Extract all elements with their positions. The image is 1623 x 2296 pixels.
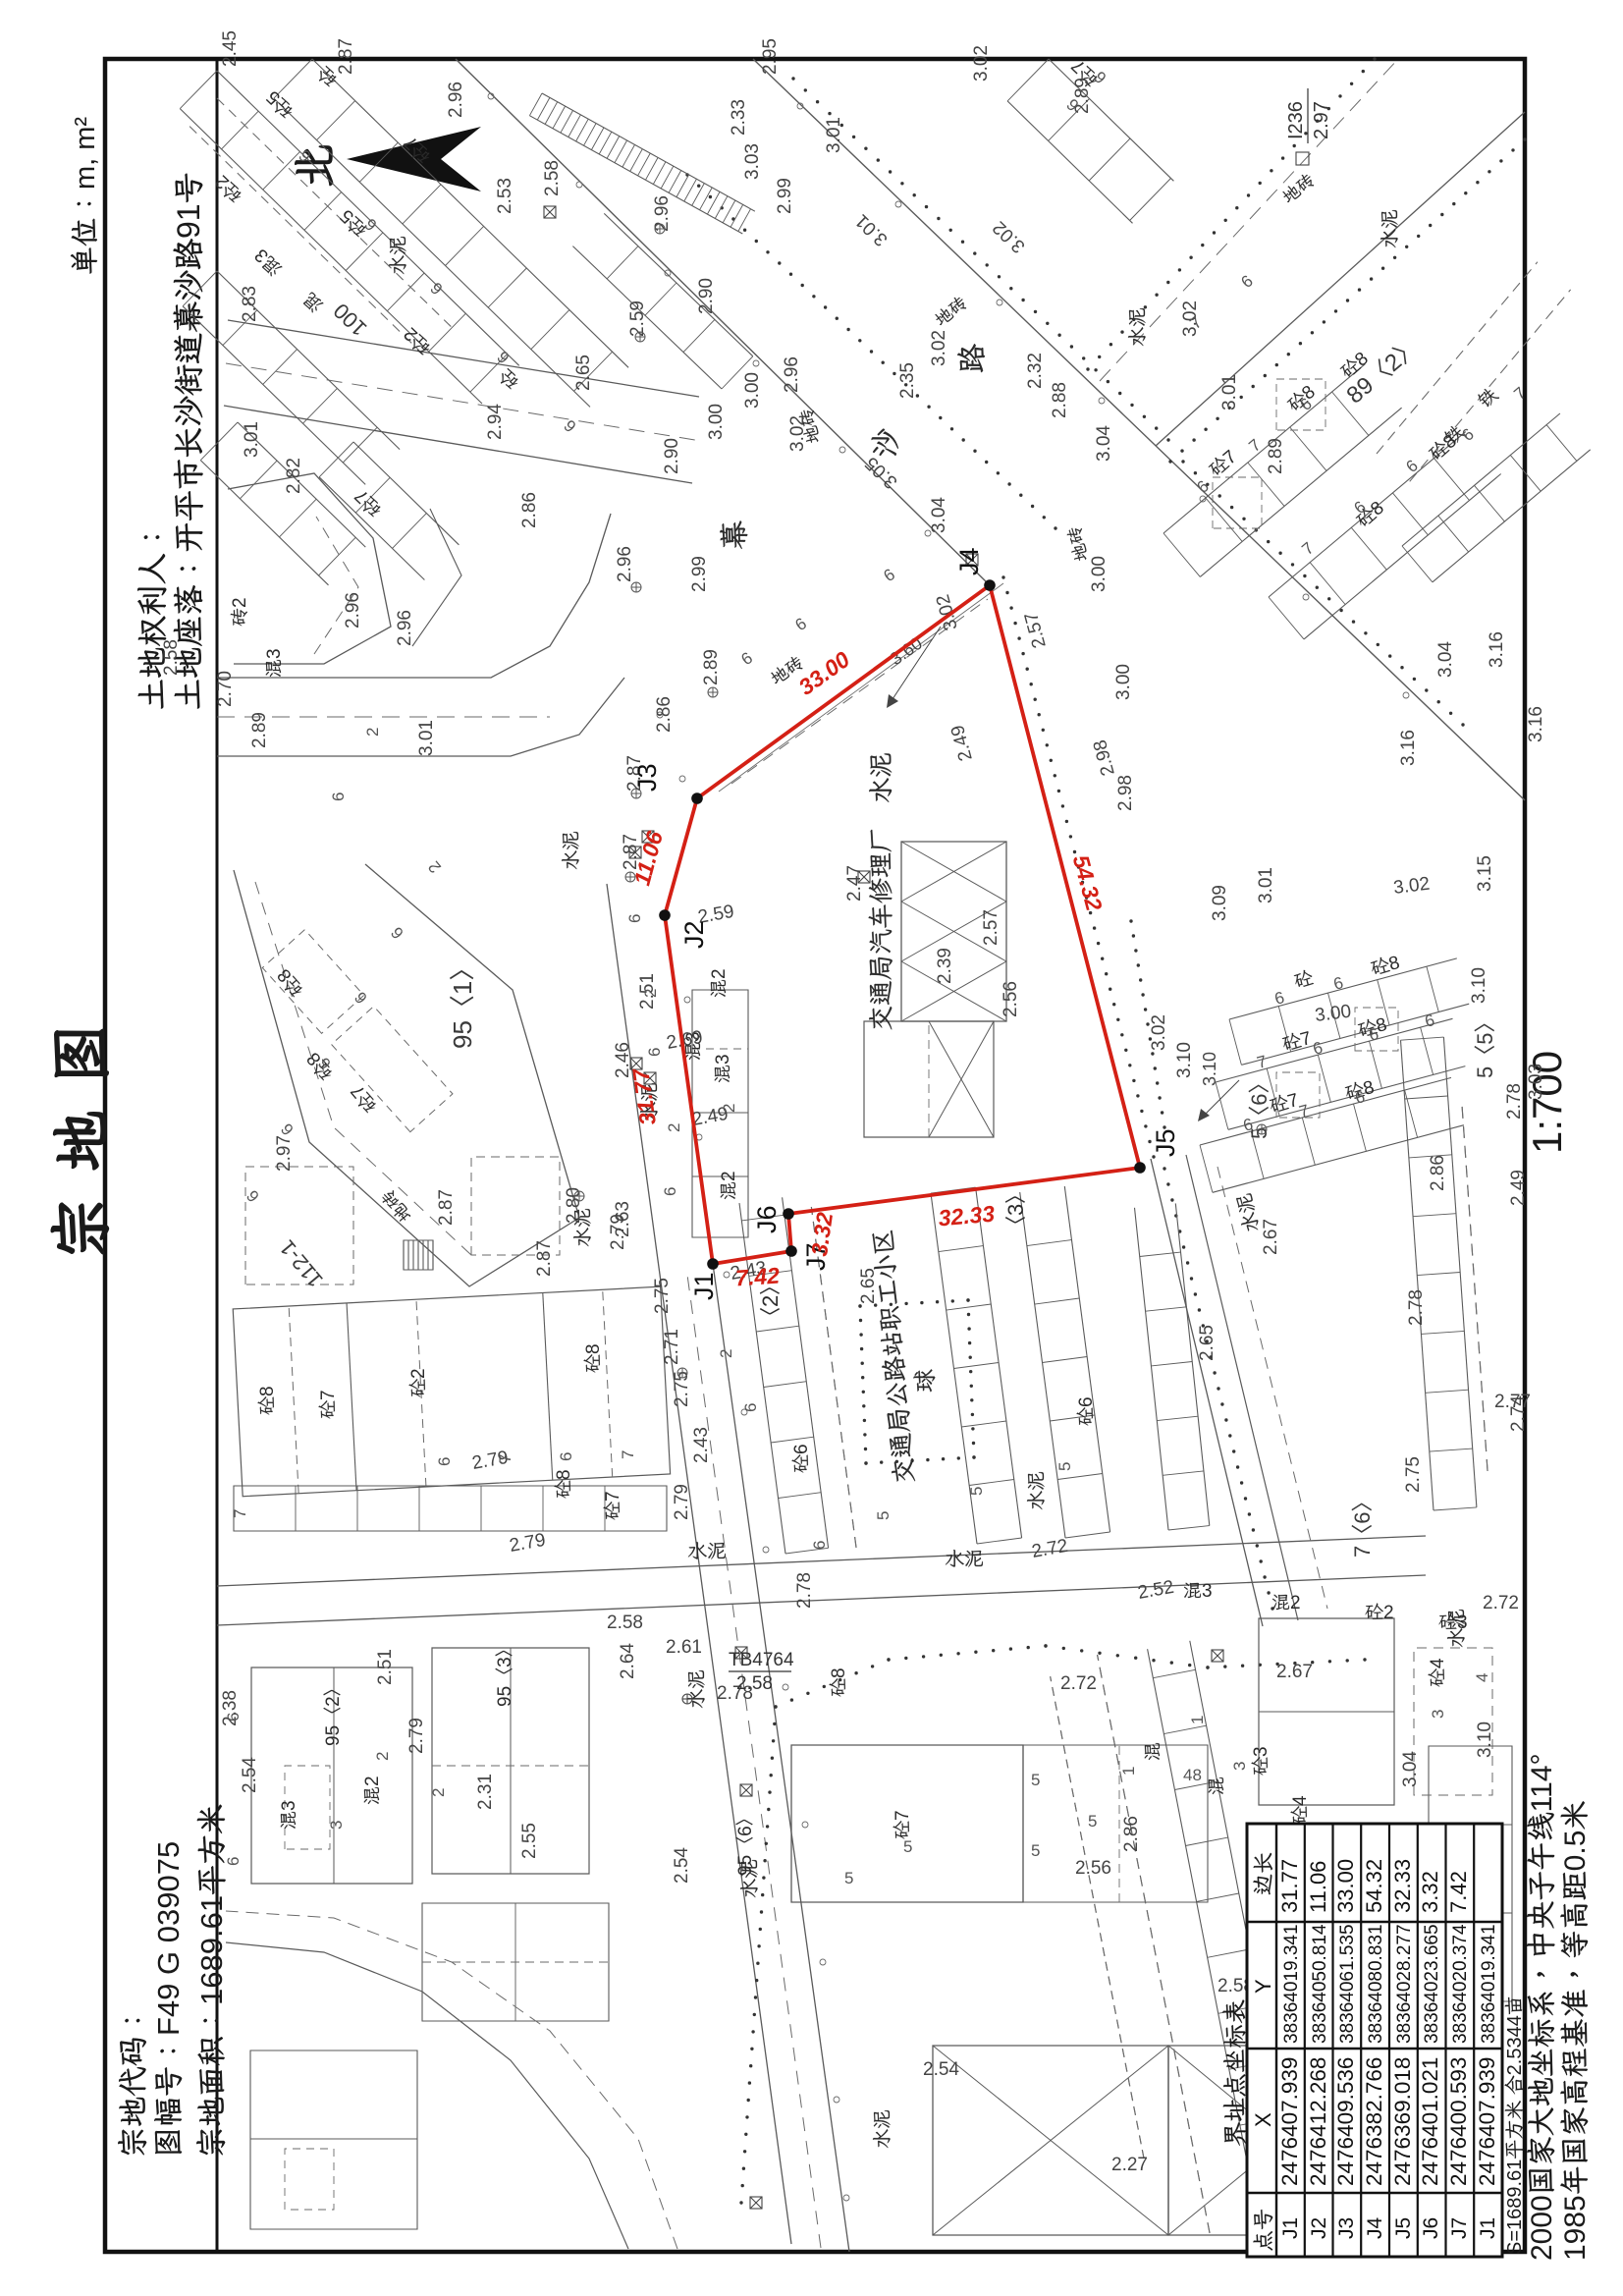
svg-text:2: 2: [641, 989, 660, 998]
svg-text:54.32: 54.32: [1362, 1859, 1386, 1913]
svg-text:38364019.341: 38364019.341: [1479, 1924, 1499, 2044]
svg-text:5: 5: [874, 1511, 893, 1520]
svg-text:J4: J4: [1364, 2217, 1386, 2240]
svg-text:3.01: 3.01: [416, 720, 437, 756]
svg-text:11.06: 11.06: [1306, 1861, 1330, 1913]
svg-text:6: 6: [791, 1444, 812, 1454]
svg-text:32.33: 32.33: [1390, 1859, 1415, 1913]
svg-text:3: 3: [495, 1657, 515, 1667]
svg-text:2.89: 2.89: [1266, 438, 1286, 474]
svg-text:5: 5: [903, 1837, 912, 1856]
svg-text:4: 4: [1473, 1673, 1491, 1682]
svg-text:2.86: 2.86: [1428, 1155, 1448, 1191]
svg-text:2476407.939: 2476407.939: [1475, 2057, 1499, 2186]
svg-text:m, m²: m, m²: [70, 117, 101, 190]
svg-text:91: 91: [171, 203, 206, 239]
svg-text:J2: J2: [679, 920, 709, 949]
svg-text:2.99: 2.99: [775, 178, 795, 214]
svg-text:2.98: 2.98: [1115, 775, 1136, 811]
svg-text:2.95: 2.95: [760, 38, 781, 75]
svg-text:2.49: 2.49: [1508, 1170, 1529, 1206]
svg-text:2476400.593: 2476400.593: [1446, 2057, 1471, 2186]
svg-text:8: 8: [829, 1667, 849, 1678]
svg-text:2.82: 2.82: [284, 458, 304, 494]
svg-text:2: 2: [362, 1776, 383, 1786]
svg-text:2.71: 2.71: [662, 1329, 682, 1365]
svg-text:33.00: 33.00: [1333, 1859, 1358, 1913]
svg-text:1: 1: [1188, 1716, 1207, 1724]
svg-text:38364080.831: 38364080.831: [1366, 1924, 1386, 2044]
svg-text:2.64: 2.64: [618, 1643, 638, 1679]
svg-text:5: 5: [1088, 1812, 1097, 1831]
svg-text:TB4764: TB4764: [729, 1650, 794, 1670]
svg-text:3.01: 3.01: [242, 421, 262, 458]
svg-text:5: 5: [1031, 1841, 1040, 1860]
svg-text:5: 5: [1031, 1771, 1040, 1789]
svg-text:3.01: 3.01: [824, 117, 844, 153]
svg-text:J1: J1: [1477, 2217, 1499, 2239]
svg-text:5: 5: [1055, 1462, 1074, 1471]
svg-text:5: 5: [967, 1487, 986, 1496]
svg-text:114°: 114°: [1526, 1753, 1558, 1812]
svg-text:7: 7: [603, 1491, 623, 1502]
svg-text:2.61: 2.61: [666, 1637, 702, 1658]
svg-text:3.03: 3.03: [1526, 1064, 1546, 1100]
svg-text:1985: 1985: [1559, 2195, 1592, 2261]
svg-text:2.97: 2.97: [274, 1135, 295, 1172]
svg-text:3: 3: [713, 1054, 733, 1065]
svg-text:2.72: 2.72: [1483, 1593, 1519, 1613]
svg-text:1: 1: [1119, 1767, 1138, 1776]
svg-text:Y: Y: [1251, 1979, 1275, 1994]
svg-text:38364050.814: 38364050.814: [1310, 1924, 1330, 2044]
svg-text:2.89: 2.89: [249, 712, 270, 748]
svg-text:32.33: 32.33: [937, 1201, 996, 1231]
svg-text:3.02: 3.02: [1392, 874, 1431, 899]
svg-text:2.86: 2.86: [519, 492, 540, 528]
svg-text:3.01: 3.01: [1256, 867, 1276, 903]
svg-text:3: 3: [1457, 1613, 1468, 1633]
svg-text:2.99: 2.99: [689, 556, 710, 592]
svg-text:3.10: 3.10: [1200, 1052, 1219, 1086]
svg-text:2.65: 2.65: [573, 355, 594, 391]
svg-text:95: 95: [495, 1686, 515, 1707]
svg-text:7: 7: [231, 1509, 249, 1518]
svg-text:2.87: 2.87: [534, 1240, 555, 1277]
svg-text:3.16: 3.16: [1398, 730, 1419, 766]
svg-text:3: 3: [1230, 1762, 1249, 1771]
svg-text:J2: J2: [1308, 2217, 1330, 2239]
svg-text:2.65: 2.65: [858, 1268, 879, 1304]
svg-text:J1: J1: [1279, 2217, 1302, 2239]
svg-text:2.87: 2.87: [436, 1189, 457, 1226]
svg-text:2: 2: [429, 1788, 448, 1797]
svg-text:6: 6: [224, 1857, 243, 1866]
svg-text:6: 6: [645, 1048, 664, 1057]
svg-text:3.02: 3.02: [787, 415, 808, 452]
svg-text:2.58: 2.58: [542, 160, 563, 196]
svg-text:2476401.021: 2476401.021: [1418, 2057, 1442, 2186]
svg-text:2.75: 2.75: [1403, 1456, 1424, 1493]
svg-text:6: 6: [224, 1713, 243, 1722]
svg-text:2.55: 2.55: [519, 1823, 540, 1859]
svg-text:J4: J4: [954, 547, 984, 575]
svg-text:2: 2: [363, 728, 382, 737]
svg-text:2.78: 2.78: [794, 1572, 815, 1609]
svg-text:2.45: 2.45: [220, 30, 241, 67]
svg-text:3: 3: [1251, 1746, 1271, 1757]
svg-text:3.04: 3.04: [1094, 425, 1114, 462]
svg-text:95: 95: [735, 1855, 756, 1876]
svg-text:2.80: 2.80: [564, 1187, 584, 1224]
svg-text:J5: J5: [1151, 1128, 1180, 1157]
svg-text:2.94: 2.94: [485, 404, 506, 440]
svg-text:3.04: 3.04: [929, 497, 949, 533]
svg-text:2.74: 2.74: [1508, 1395, 1529, 1432]
svg-text:3: 3: [1003, 1204, 1028, 1216]
svg-text:2.70: 2.70: [215, 671, 236, 707]
svg-text:2.88: 2.88: [1050, 382, 1070, 418]
svg-text:2.5344: 2.5344: [1504, 2015, 1526, 2075]
svg-text:2.89: 2.89: [701, 649, 722, 685]
svg-text:2: 2: [720, 1104, 738, 1113]
svg-text:2: 2: [230, 597, 250, 608]
svg-text:2.58: 2.58: [607, 1613, 643, 1633]
svg-text:3.04: 3.04: [1435, 641, 1456, 678]
svg-text:3: 3: [1202, 1581, 1213, 1602]
svg-text:3.01: 3.01: [1219, 374, 1240, 410]
svg-text:6: 6: [557, 1452, 575, 1461]
svg-text:2476409.536: 2476409.536: [1333, 2057, 1358, 2186]
svg-text:6: 6: [435, 1457, 454, 1466]
svg-text:2: 2: [373, 1752, 392, 1761]
svg-text:2: 2: [323, 1696, 344, 1707]
svg-text:2.96: 2.96: [395, 610, 415, 646]
svg-text:2.54: 2.54: [240, 1757, 260, 1793]
svg-text:38364023.665: 38364023.665: [1422, 1924, 1442, 2044]
svg-text:S=1689.61: S=1689.61: [1504, 2159, 1526, 2255]
svg-text:3: 3: [279, 1800, 299, 1811]
svg-text:J3: J3: [1335, 2217, 1358, 2239]
svg-text:31.77: 31.77: [1277, 1859, 1302, 1913]
svg-text:2: 2: [758, 1295, 783, 1307]
svg-text:F49 G 039075: F49 G 039075: [151, 1841, 186, 2036]
svg-text:2.79: 2.79: [406, 1718, 427, 1754]
svg-text:J6: J6: [752, 1205, 782, 1233]
svg-text:38364061.535: 38364061.535: [1337, 1924, 1358, 2044]
svg-text:2: 2: [1290, 1593, 1301, 1613]
svg-text:38364028.277: 38364028.277: [1394, 1924, 1415, 2044]
svg-text:2.83: 2.83: [240, 286, 260, 322]
svg-text:4: 4: [1428, 1658, 1448, 1668]
svg-text:2000: 2000: [1526, 2195, 1558, 2261]
svg-text:3.10: 3.10: [1475, 1722, 1495, 1758]
svg-text:2.39: 2.39: [935, 948, 955, 984]
svg-text:2.96: 2.96: [446, 82, 466, 118]
svg-text:1689.61: 1689.61: [194, 1895, 229, 2005]
svg-text:3.00: 3.00: [742, 372, 763, 409]
svg-text:7.42: 7.42: [734, 1262, 781, 1290]
svg-text:2.67: 2.67: [1276, 1662, 1313, 1682]
svg-text:2.57: 2.57: [981, 909, 1001, 946]
svg-text:2.65: 2.65: [1197, 1325, 1217, 1361]
svg-text:3.16: 3.16: [1526, 706, 1546, 742]
svg-text:X: X: [1251, 2112, 1275, 2127]
svg-text:5〈5〉: 5〈5〉: [1473, 1011, 1497, 1078]
svg-text:38364019.341: 38364019.341: [1281, 1924, 1302, 2044]
svg-text:6: 6: [661, 1187, 679, 1196]
svg-text:2: 2: [717, 1349, 735, 1358]
svg-text:J5: J5: [1392, 2217, 1415, 2239]
svg-text:3.32: 3.32: [1418, 1871, 1442, 1913]
svg-text:3: 3: [264, 648, 285, 659]
svg-text:8: 8: [554, 1469, 574, 1480]
svg-text:2: 2: [719, 1171, 739, 1181]
svg-text:2.31: 2.31: [475, 1774, 496, 1810]
svg-text:2.33: 2.33: [729, 99, 749, 136]
svg-text:3.02: 3.02: [1149, 1014, 1169, 1051]
svg-text:2.96: 2.96: [782, 356, 802, 393]
svg-text:7: 7: [496, 1454, 514, 1463]
svg-text:2.97: 2.97: [1311, 101, 1332, 139]
svg-text:2.54: 2.54: [672, 1847, 692, 1884]
svg-text:3: 3: [1429, 1710, 1447, 1719]
svg-text:6: 6: [1076, 1396, 1097, 1407]
svg-text:2.53: 2.53: [495, 178, 515, 214]
svg-text:3.00: 3.00: [706, 404, 727, 440]
svg-text:6: 6: [735, 1826, 756, 1836]
svg-text:2.54: 2.54: [923, 2059, 959, 2080]
svg-text:3.00: 3.00: [1314, 1002, 1352, 1026]
svg-text:4: 4: [1290, 1795, 1311, 1806]
svg-text:2.56: 2.56: [1075, 1858, 1111, 1879]
svg-text:2.59: 2.59: [627, 301, 648, 337]
svg-text:8: 8: [257, 1386, 278, 1396]
svg-text:6: 6: [329, 793, 348, 801]
svg-text:2.67: 2.67: [1261, 1219, 1281, 1255]
svg-text:3.02: 3.02: [971, 45, 992, 82]
svg-text:2.79: 2.79: [672, 1484, 692, 1520]
svg-text:2.86: 2.86: [654, 696, 675, 733]
svg-text:J6: J6: [1420, 2217, 1442, 2239]
svg-text:3: 3: [327, 1821, 346, 1830]
svg-text:2.56: 2.56: [1001, 981, 1021, 1017]
svg-text:2.72: 2.72: [1060, 1673, 1097, 1694]
svg-text:95〈1〉: 95〈1〉: [448, 956, 477, 1049]
svg-text:3.03: 3.03: [742, 143, 763, 180]
svg-text:2.87: 2.87: [336, 38, 356, 75]
svg-text:7〈6〉: 7〈6〉: [1350, 1491, 1375, 1558]
svg-text:2476369.018: 2476369.018: [1390, 2057, 1415, 2186]
svg-text:2: 2: [665, 1123, 683, 1132]
svg-text:3.10: 3.10: [1469, 967, 1489, 1004]
svg-text:6: 6: [741, 1403, 760, 1412]
svg-text:2.75: 2.75: [652, 1278, 673, 1314]
svg-text:J3: J3: [632, 763, 662, 792]
svg-text:2476382.766: 2476382.766: [1362, 2057, 1386, 2186]
svg-text:2.90: 2.90: [662, 438, 682, 474]
svg-text:2476407.939: 2476407.939: [1277, 2057, 1302, 2186]
svg-text:J1: J1: [689, 1272, 719, 1300]
svg-text:3.16: 3.16: [1487, 631, 1507, 668]
svg-text:2.79: 2.79: [608, 1214, 628, 1250]
svg-text:6: 6: [810, 1541, 829, 1550]
svg-text:2.78: 2.78: [1504, 1083, 1525, 1120]
svg-text:2.27: 2.27: [1111, 2155, 1148, 2175]
svg-text:8: 8: [583, 1343, 604, 1354]
svg-text:2: 2: [408, 1368, 429, 1379]
svg-text:3.00: 3.00: [1113, 664, 1134, 700]
svg-text:2.78: 2.78: [1406, 1289, 1427, 1326]
svg-text:3.09: 3.09: [1210, 885, 1230, 921]
svg-text:7: 7: [318, 1390, 339, 1400]
svg-text:95: 95: [323, 1725, 344, 1746]
svg-text:2: 2: [1383, 1603, 1394, 1623]
svg-text:I236: I236: [1285, 101, 1307, 139]
svg-text:6: 6: [625, 914, 644, 923]
svg-text:7.42: 7.42: [1446, 1871, 1471, 1913]
svg-text:2.32: 2.32: [1025, 353, 1046, 389]
svg-text:2476412.268: 2476412.268: [1306, 2057, 1330, 2186]
svg-text:2: 2: [709, 968, 730, 979]
svg-text:38364020.374: 38364020.374: [1450, 1924, 1471, 2044]
svg-text:7: 7: [619, 1450, 637, 1459]
svg-text:7: 7: [893, 1810, 913, 1821]
svg-text:3.00: 3.00: [1089, 556, 1109, 592]
svg-text:48: 48: [1183, 1766, 1202, 1784]
svg-text:2.96: 2.96: [343, 592, 363, 629]
svg-text:J7: J7: [1448, 2217, 1471, 2239]
svg-text:3.10: 3.10: [1174, 1042, 1195, 1078]
svg-text:2.43: 2.43: [691, 1427, 712, 1463]
svg-text:2.90: 2.90: [696, 278, 717, 314]
svg-text:2.58: 2.58: [736, 1673, 773, 1694]
svg-text:3.04: 3.04: [1400, 1751, 1421, 1787]
svg-text:2.58: 2.58: [161, 639, 182, 676]
svg-text:2.51: 2.51: [375, 1649, 396, 1685]
svg-text:2.86: 2.86: [1121, 1816, 1142, 1852]
svg-text:3.02: 3.02: [929, 330, 949, 366]
svg-text:2.96: 2.96: [615, 546, 635, 582]
svg-text:3.15: 3.15: [1475, 855, 1495, 892]
svg-text:0.5: 0.5: [1559, 1831, 1592, 1872]
svg-text:5: 5: [844, 1869, 853, 1887]
svg-text:2.35: 2.35: [897, 362, 918, 399]
